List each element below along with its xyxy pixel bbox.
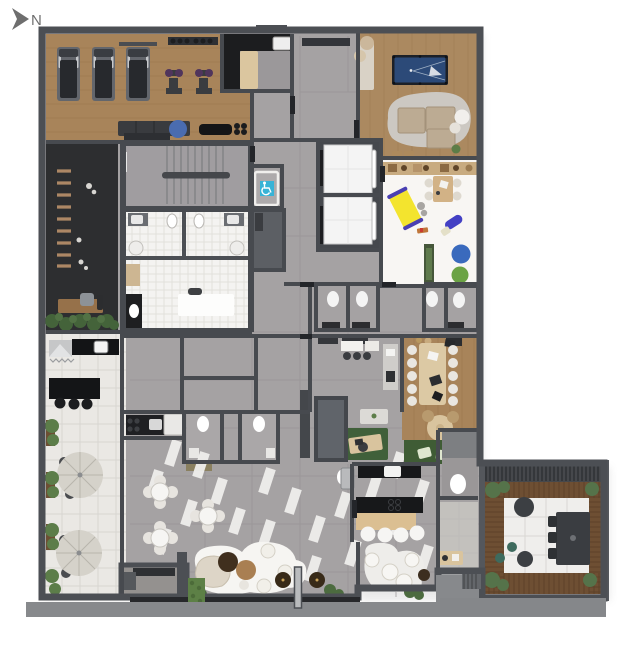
svg-text:N: N <box>31 12 42 29</box>
